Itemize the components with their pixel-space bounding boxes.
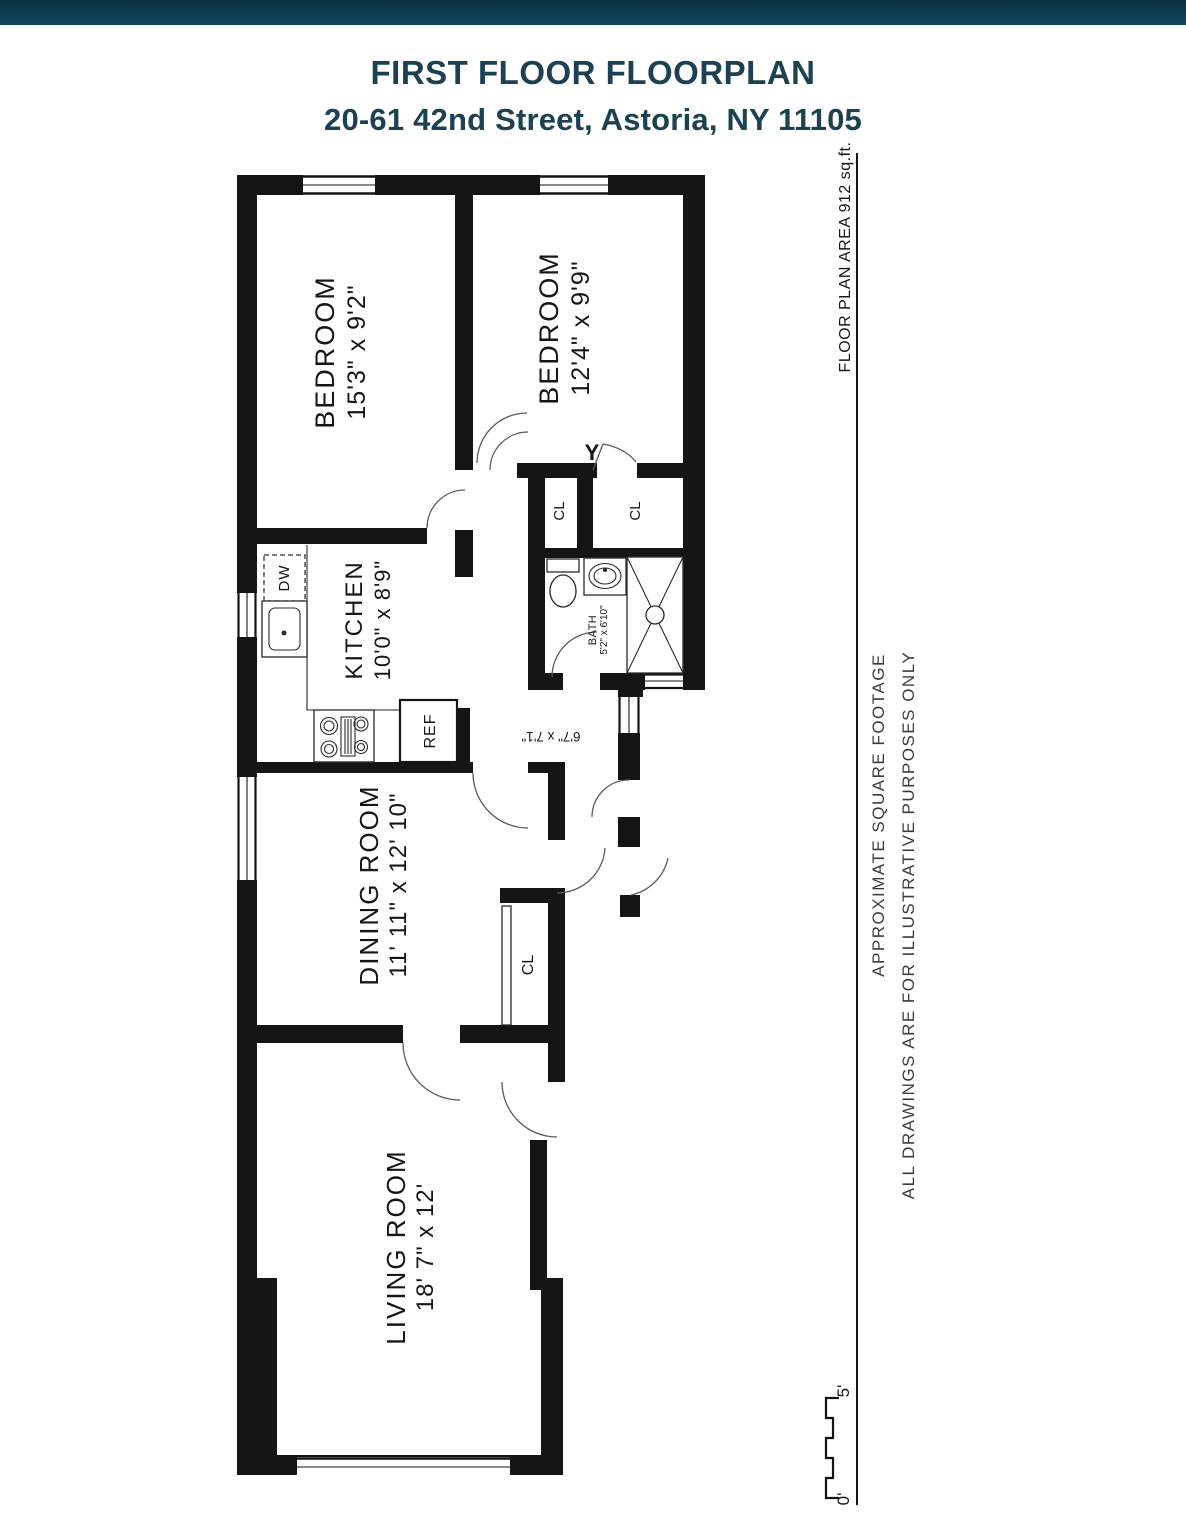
svg-text:BATH: BATH — [587, 615, 599, 646]
svg-text:15'3" x 9'2": 15'3" x 9'2" — [343, 284, 371, 419]
scale-bottom-label: 0' — [834, 1493, 853, 1506]
refrigerator-label: REF — [422, 714, 439, 749]
closet-label-2: CL — [627, 501, 644, 520]
scale-bar: 5' 0' — [826, 1385, 853, 1506]
svg-text:BEDROOM: BEDROOM — [310, 275, 340, 429]
room-label-dining: DINING ROOM 11' 11" x 12' 10" — [354, 784, 412, 985]
room-label-bath: BATH 5'2" x 6'10" — [587, 605, 610, 655]
dishwasher-label: DW — [276, 565, 293, 592]
refrigerator-icon: REF — [400, 700, 457, 762]
svg-text:DINING ROOM: DINING ROOM — [354, 784, 384, 985]
kitchen-sink-icon — [262, 601, 307, 657]
svg-text:10'0" x 8'9": 10'0" x 8'9" — [370, 560, 395, 680]
dishwasher-icon: DW — [264, 555, 305, 601]
floor-area-note: FLOOR PLAN AREA 912 sq.ft. — [837, 142, 854, 373]
svg-text:18' 7" x 12': 18' 7" x 12' — [412, 1183, 439, 1311]
closet-bifold-door — [502, 906, 511, 1025]
closet-label-1: CL — [551, 501, 568, 520]
room-label-living: LIVING ROOM 18' 7" x 12' — [381, 1149, 439, 1344]
floor-plan-drawing: DW REF BEDROOM 15'3" x 9'2" — [0, 0, 1186, 1536]
door-marker-y: Y — [585, 440, 600, 465]
svg-text:BEDROOM: BEDROOM — [534, 251, 564, 405]
bath-sink-icon — [584, 558, 626, 595]
stove-icon — [314, 710, 374, 762]
scale-top-label: 5' — [834, 1385, 853, 1398]
hall-dims-label: 6'7" x 7'1" — [521, 729, 580, 744]
room-label-bedroom-1: BEDROOM 15'3" x 9'2" — [310, 275, 371, 429]
shower-icon — [627, 557, 683, 673]
disclaimer-line-1: APPROXIMATE SQUARE FOOTAGE — [869, 653, 888, 977]
floorplan-page: FIRST FLOOR FLOORPLAN 20-61 42nd Street,… — [0, 0, 1186, 1536]
svg-text:11' 11" x 12' 10": 11' 11" x 12' 10" — [385, 792, 412, 977]
svg-text:5'2" x 6'10": 5'2" x 6'10" — [599, 605, 610, 655]
toilet-icon — [547, 559, 579, 607]
walls — [237, 175, 705, 1475]
room-label-bedroom-2: BEDROOM 12'4" x 9'9" — [534, 251, 595, 405]
svg-text:KITCHEN: KITCHEN — [341, 560, 368, 679]
disclaimer-line-2: ALL DRAWINGS ARE FOR ILLUSTRATIVE PURPOS… — [899, 651, 918, 1200]
closet-label-3: CL — [520, 955, 537, 976]
svg-text:12'4" x 9'9": 12'4" x 9'9" — [567, 260, 595, 395]
svg-text:LIVING ROOM: LIVING ROOM — [381, 1149, 411, 1344]
room-label-kitchen: KITCHEN 10'0" x 8'9" — [341, 560, 395, 680]
